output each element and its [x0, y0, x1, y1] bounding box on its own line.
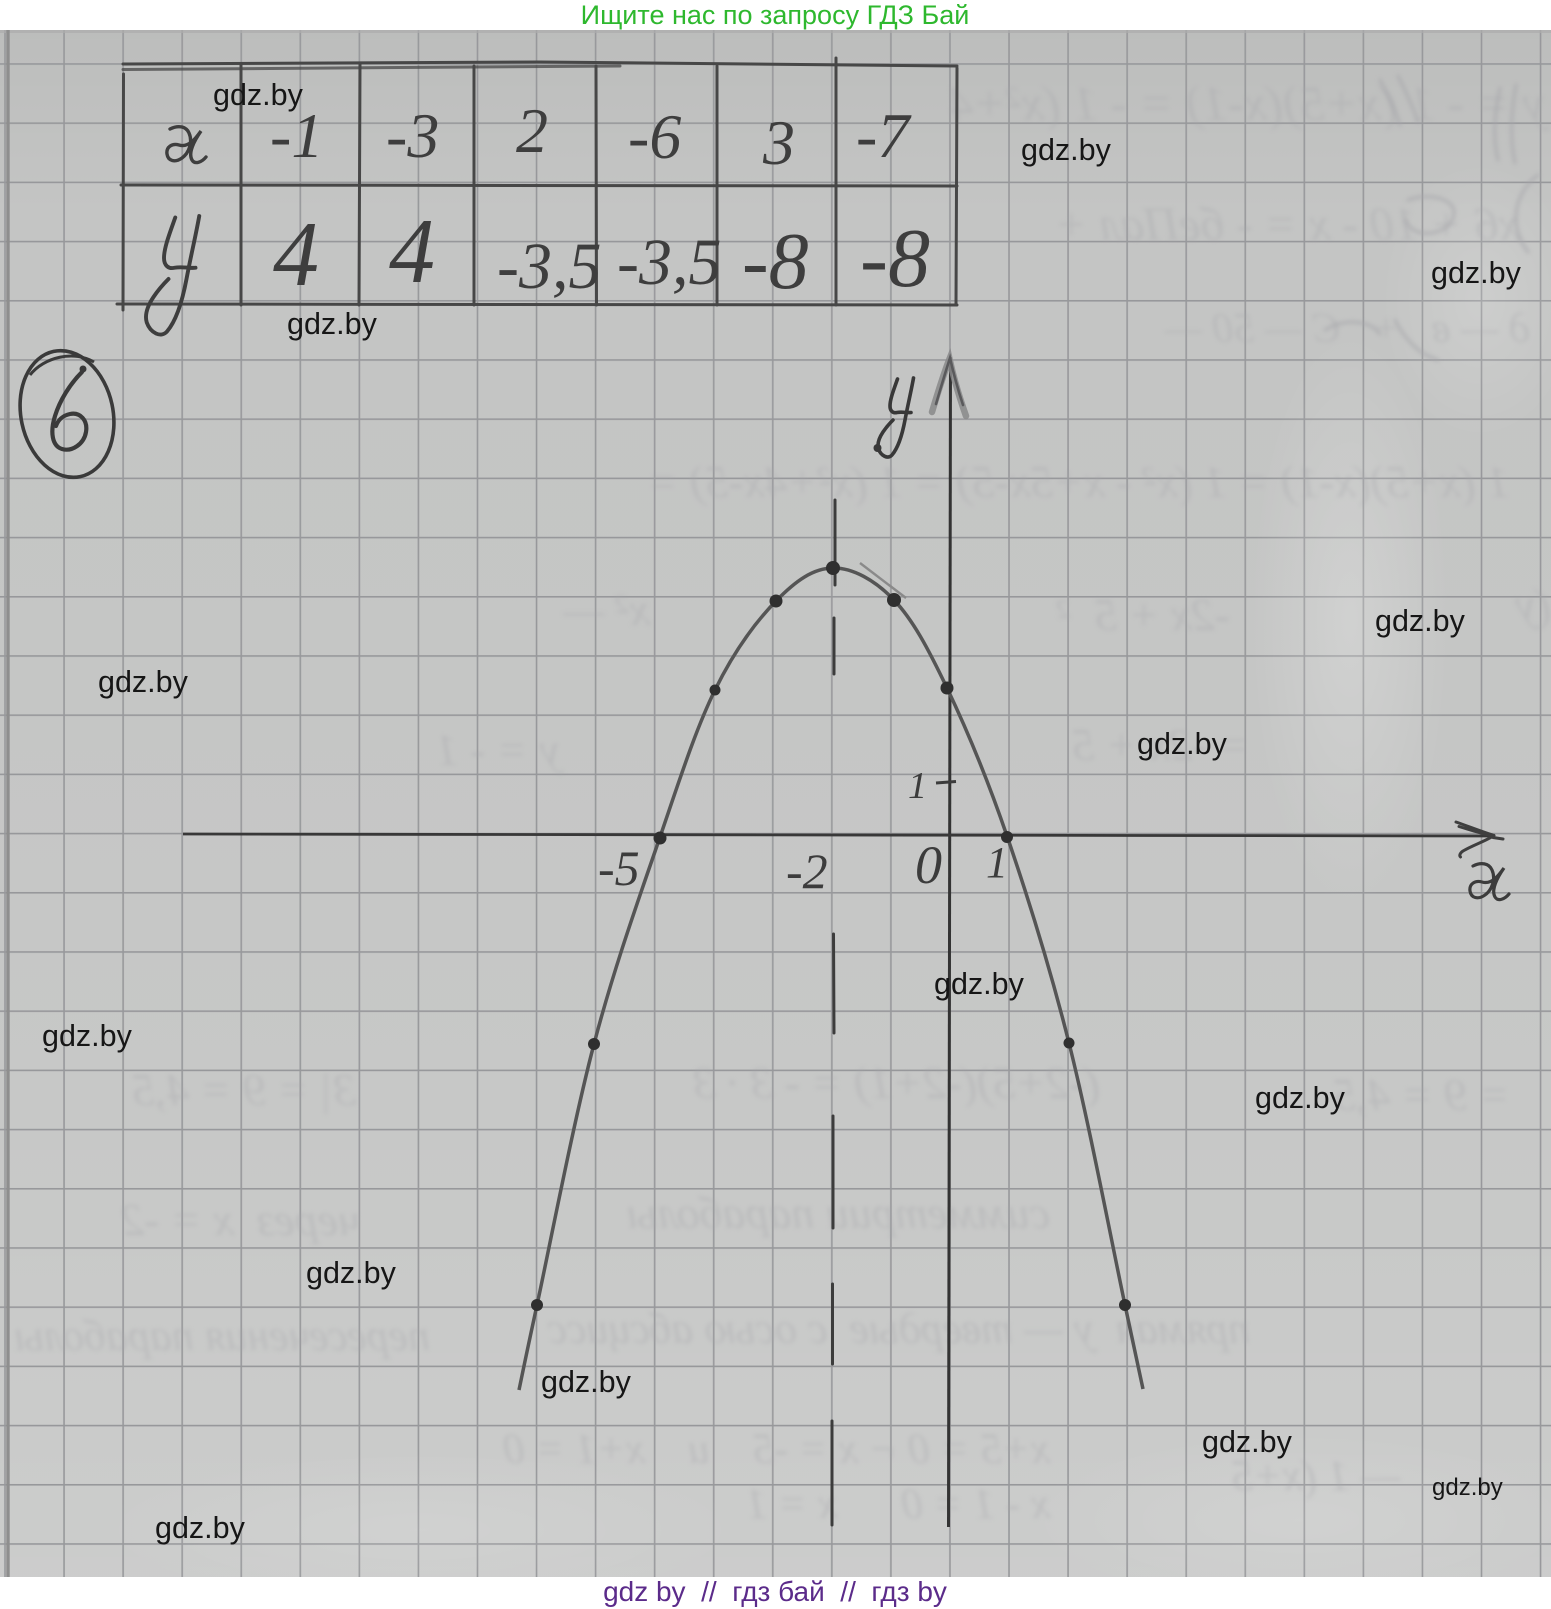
svg-text:-2х + 5 ²: -2х + 5 ²	[1056, 589, 1230, 640]
svg-text:у = - 1 (х+5)(х-1) = - 1 (х²+4: у = - 1 (х+5)(х-1) = - 1 (х²+4	[948, 75, 1550, 131]
svg-text:4: 4	[273, 203, 319, 305]
svg-text:пересечения параболы: пересечения параболы	[14, 1311, 430, 1360]
svg-text:д — в + С — 50 —: д — в + С — 50 —	[1164, 306, 1530, 352]
svg-text:х - 1 = 0 х = 1: х - 1 = 0 х = 1	[746, 1481, 1051, 1528]
svg-text:-8: -8	[742, 218, 809, 306]
svg-text:через х = -2: через х = -2	[121, 1194, 360, 1245]
svg-text:2: 2	[516, 95, 548, 166]
svg-text:-8: -8	[860, 212, 930, 305]
svg-text:gdz.by: gdz.by	[98, 665, 189, 699]
svg-text:-5: -5	[598, 840, 640, 896]
svg-text:у = - 1: у = - 1	[436, 724, 564, 775]
svg-text:gdz.by: gdz.by	[155, 1511, 246, 1545]
svg-text:= 9 = 4,5: = 9 = 4,5	[1333, 1069, 1510, 1120]
svg-text:-6: -6	[628, 101, 681, 172]
svg-text:1 (х+5)(х-1) = 1 (х² - х+5х-5): 1 (х+5)(х-1) = 1 (х² - х+5х-5) = 1 (х²+4…	[647, 456, 1510, 507]
svg-text:1: 1	[908, 765, 927, 807]
svg-text:gdz.by: gdz.by	[42, 1019, 133, 1053]
svg-text:gdz by // гдз бай // гдз b: gdz by // гдз бай // гдз by	[603, 1576, 947, 1607]
svg-text:gdz.by: gdz.by	[934, 967, 1025, 1001]
svg-text:gdz.by: gdz.by	[1375, 604, 1466, 638]
svg-text:прямая у — твердые с осью аб: прямая у — твердые с осью абсцисс	[547, 1304, 1250, 1353]
svg-text:1: 1	[986, 838, 1008, 887]
svg-text:gdz.by: gdz.by	[1202, 1425, 1293, 1459]
svg-text:-3,5: -3,5	[617, 226, 721, 299]
svg-text:-7: -7	[856, 100, 912, 171]
svg-text:-2: -2	[786, 843, 828, 899]
svg-text:3| = 9 = 4,5: 3| = 9 = 4,5	[132, 1064, 357, 1115]
svg-text:gdz.by: gdz.by	[1431, 256, 1522, 290]
svg-text:gdz.by: gdz.by	[541, 1365, 632, 1399]
svg-text:х² —: х² —	[562, 584, 651, 635]
svg-text:-3: -3	[386, 100, 439, 171]
svg-text:х+5 = 0 ⌐ х = -5 и х+1 =: х+5 = 0 ⌐ х = -5 и х+1 = 0	[503, 1426, 1051, 1473]
svg-text:gdz.by: gdz.by	[287, 307, 378, 341]
svg-text:Ищите нас по запросу ГДЗ Бай: Ищите нас по запросу ГДЗ Бай	[581, 0, 970, 30]
svg-text:gdz.by: gdz.by	[1255, 1081, 1346, 1115]
svg-text:(у: (у	[1515, 579, 1551, 630]
svg-text:gdz.by: gdz.by	[1137, 727, 1228, 761]
svg-text:4: 4	[389, 200, 435, 302]
svg-text:симметрии параболы: симметрии параболы	[627, 1187, 1050, 1238]
svg-text:gdz.by: gdz.by	[1021, 133, 1112, 167]
svg-text:gdz.by: gdz.by	[306, 1256, 397, 1290]
svg-text:gdz.by: gdz.by	[1432, 1474, 1503, 1501]
svg-text:3: 3	[762, 107, 795, 178]
svg-text:gdz.by: gdz.by	[213, 78, 304, 112]
svg-text:(-2+5)(-2+1) = - 3 · 3: (-2+5)(-2+1) = - 3 · 3	[693, 1057, 1100, 1108]
svg-text:-3,5: -3,5	[497, 230, 601, 303]
svg-text:0: 0	[915, 835, 942, 895]
